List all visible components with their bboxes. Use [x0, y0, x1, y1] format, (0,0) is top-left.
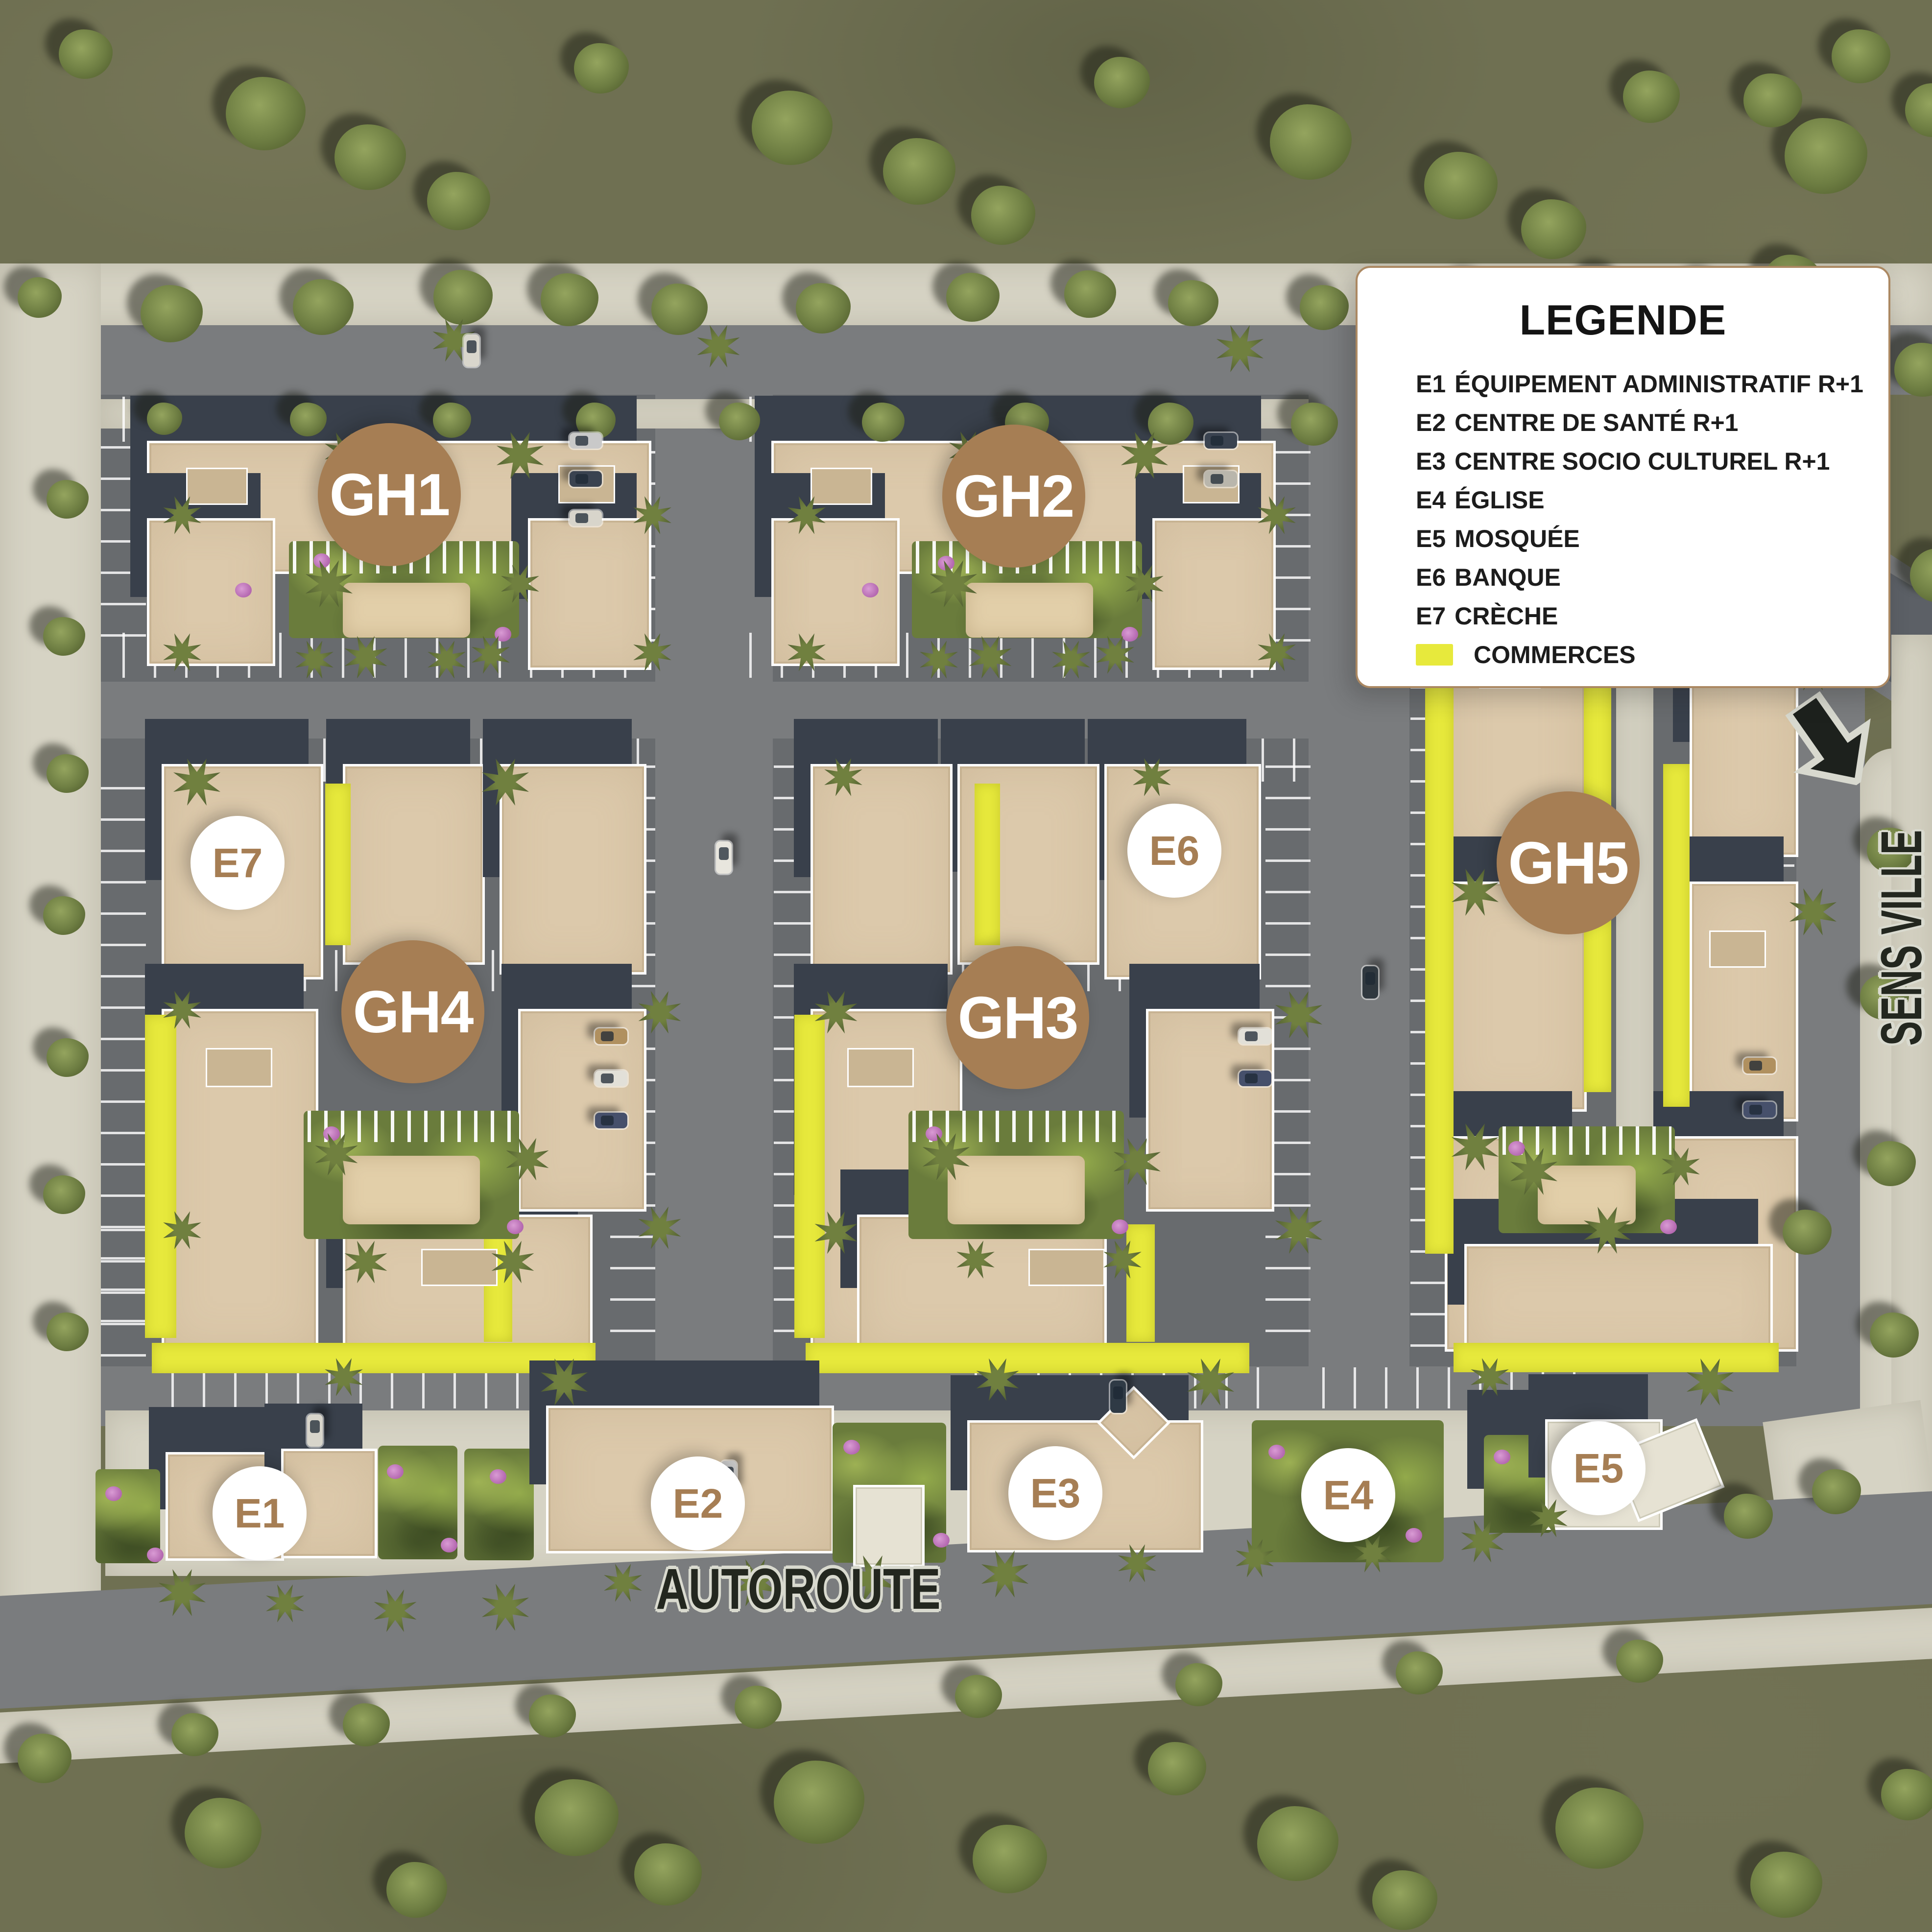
legend-item-code: E6 [1416, 563, 1446, 592]
tree [185, 1798, 262, 1868]
tree [427, 172, 490, 230]
building [500, 764, 646, 975]
building [1152, 518, 1276, 670]
tree [1743, 73, 1802, 127]
building [1464, 1244, 1773, 1360]
car-roof [575, 436, 588, 446]
legend-item-e4: E4ÉGLISE [1416, 480, 1859, 519]
tree [386, 1862, 447, 1918]
legend-item-e7: E7CRÈCHE [1416, 596, 1859, 635]
marker-e7: E7 [191, 816, 285, 910]
commerce-strip [1663, 764, 1690, 1107]
marker-gh3: GH3 [946, 946, 1089, 1089]
tree [1424, 152, 1498, 219]
commerces-swatch-icon [1416, 644, 1453, 666]
building [771, 518, 900, 666]
flower-bed [235, 583, 252, 597]
courtyard-patio [1538, 1166, 1636, 1224]
parked-car [570, 471, 602, 487]
tree [774, 1761, 864, 1844]
pergola [1503, 1126, 1671, 1155]
flower-bed [1121, 627, 1138, 642]
tree [18, 1734, 72, 1783]
pergola [912, 1111, 1121, 1142]
marker-e6: E6 [1127, 804, 1221, 898]
glass-structure [853, 1485, 925, 1567]
tree [752, 91, 833, 165]
car-roof [1245, 1073, 1258, 1083]
flower-bed [490, 1469, 506, 1484]
map-shape [421, 1249, 498, 1286]
car-roof [1245, 1031, 1258, 1041]
legend-item-code: E4 [1416, 486, 1446, 514]
legend-item-code: E2 [1416, 408, 1446, 437]
legend-title: LEGENDE [1416, 296, 1830, 345]
tree [1270, 104, 1352, 180]
flower-bed [933, 1533, 950, 1548]
car-roof [601, 1031, 614, 1041]
map-shape [1028, 1249, 1105, 1286]
tree [59, 29, 113, 79]
car-roof [310, 1420, 320, 1433]
parked-car [1205, 471, 1237, 487]
marker-gh1: GH1 [318, 423, 461, 566]
tree [1094, 57, 1150, 108]
map-shape [206, 1048, 272, 1087]
commerce-strip [794, 1015, 825, 1338]
flower-bed [1406, 1528, 1422, 1543]
parked-car [307, 1414, 323, 1447]
parked-car [1362, 966, 1378, 999]
legend-item-code: E1 [1416, 370, 1446, 398]
parked-car [1205, 433, 1237, 449]
courtyard-patio [343, 583, 470, 638]
tree [883, 138, 955, 205]
marker-gh2: GH2 [942, 425, 1085, 568]
tree [634, 1843, 702, 1906]
car-roof [575, 474, 588, 484]
flower-bed [1112, 1219, 1128, 1234]
commerce-strip [975, 784, 1000, 945]
tree [535, 1779, 619, 1856]
legend-item-e2: E2CENTRE DE SANTÉ R+1 [1416, 403, 1859, 442]
parked-car [464, 334, 479, 367]
commerce-strip [325, 784, 351, 945]
flower-bed [441, 1538, 457, 1552]
commerce-strip [145, 1015, 176, 1338]
tree [334, 124, 406, 190]
flower-bed [147, 1548, 164, 1562]
map-shape [186, 468, 248, 505]
flower-bed [387, 1464, 404, 1479]
autoroute-road-label: AUTOROUTE [656, 1556, 940, 1622]
car-roof [1211, 474, 1223, 484]
legend-item-label: MOSQUÉE [1455, 525, 1580, 553]
commerce-strip [1425, 637, 1454, 1254]
parked-car [1743, 1102, 1776, 1118]
marker-e2: E2 [651, 1456, 745, 1550]
commerce-strip [1454, 1343, 1779, 1372]
marker-e4: E4 [1301, 1448, 1395, 1542]
flower-bed [507, 1219, 524, 1234]
legend-item-label: BANQUE [1455, 563, 1561, 592]
left-walk [0, 263, 101, 1635]
legend-item-label: ÉGLISE [1455, 486, 1544, 514]
building [1690, 882, 1798, 1121]
tree [1257, 1806, 1338, 1881]
parked-car [570, 433, 602, 449]
parked-car [716, 841, 732, 874]
car-roof [1365, 972, 1375, 985]
car-roof [601, 1116, 614, 1125]
flower-bed [1494, 1450, 1510, 1464]
courtyard-patio [966, 583, 1093, 638]
flower-bed [105, 1486, 122, 1501]
tree [1905, 83, 1932, 137]
legend-item-label: COMMERCES [1474, 641, 1636, 669]
parked-car [1743, 1058, 1776, 1073]
flower-bed [1268, 1445, 1285, 1459]
building [811, 764, 953, 975]
tree [1555, 1788, 1644, 1869]
site-plan-map: AUTOROUTE SENS VILLE GH1GH2GH3GH4GH5E1E2… [0, 0, 1932, 1932]
marker-gh4: GH4 [341, 940, 484, 1083]
map-shape [1709, 930, 1766, 968]
marker-e1: E1 [213, 1466, 307, 1560]
car-roof [719, 847, 729, 860]
marker-e3: E3 [1008, 1446, 1102, 1540]
legend-item-e6: E6BANQUE [1416, 558, 1859, 596]
tree [1623, 71, 1680, 123]
tree [574, 43, 629, 94]
flower-bed [1508, 1141, 1525, 1156]
tree [1372, 1870, 1437, 1930]
tree [973, 1825, 1047, 1893]
tree [1175, 1663, 1222, 1706]
tree [1521, 199, 1586, 259]
legend-item-e1: E1ÉQUIPEMENT ADMINISTRATIF R+1 [1416, 364, 1859, 403]
tree [1148, 1742, 1206, 1795]
tree [735, 1686, 782, 1729]
legend-item-code: E3 [1416, 447, 1446, 476]
tree [971, 186, 1035, 245]
commerce-strip [806, 1343, 1249, 1373]
parked-car [1110, 1381, 1126, 1413]
map-shape [811, 468, 872, 505]
car-roof [1749, 1061, 1762, 1071]
marker-e5: E5 [1551, 1421, 1646, 1515]
parked-car [1239, 1028, 1271, 1044]
legend-item-label: ÉQUIPEMENT ADMINISTRATIF R+1 [1455, 370, 1863, 398]
parked-car [595, 1028, 627, 1044]
flower-bed [862, 583, 879, 597]
commerce-strip [1126, 1224, 1155, 1342]
parked-car [595, 1113, 627, 1128]
parked-car [595, 1071, 627, 1086]
car-roof [575, 513, 588, 523]
car-roof [467, 340, 477, 353]
sens-ville-road-label: SENS VILLE [1868, 830, 1932, 1046]
courtyard-patio [343, 1156, 480, 1224]
parked-car [570, 510, 602, 526]
building [528, 518, 651, 670]
tree [1616, 1640, 1663, 1683]
tree [1396, 1651, 1443, 1694]
parked-car [1239, 1071, 1271, 1086]
tree [1785, 118, 1867, 194]
legend-items: E1ÉQUIPEMENT ADMINISTRATIF R+1E2CENTRE D… [1416, 364, 1859, 674]
map-shape [847, 1048, 914, 1087]
legend-item-e3: E3CENTRE SOCIO CULTUREL R+1 [1416, 442, 1859, 480]
flower-bed [843, 1440, 860, 1455]
legend-item-e5: E5MOSQUÉE [1416, 519, 1859, 558]
tree [955, 1675, 1002, 1718]
tree [226, 77, 306, 150]
legend-item-label: CENTRE SOCIO CULTUREL R+1 [1455, 447, 1830, 476]
legend-item-code: E5 [1416, 525, 1446, 553]
flower-bed [1660, 1219, 1677, 1234]
car-roof [601, 1073, 614, 1083]
legend-panel: LEGENDE E1ÉQUIPEMENT ADMINISTRATIF R+1E2… [1356, 266, 1890, 688]
marker-gh5: GH5 [1497, 791, 1640, 934]
equipment-garden [464, 1449, 534, 1560]
building [343, 764, 485, 965]
legend-item-label: CENTRE DE SANTÉ R+1 [1455, 408, 1738, 437]
car-roof [1211, 436, 1223, 446]
car-roof [1749, 1105, 1762, 1115]
car-roof [1113, 1386, 1123, 1399]
tree [1750, 1852, 1822, 1918]
legend-item-code: E7 [1416, 602, 1446, 630]
tree [1832, 29, 1890, 83]
tree [1881, 1769, 1932, 1820]
legend-item-commerces: COMMERCES [1416, 635, 1859, 674]
legend-item-label: CRÈCHE [1455, 602, 1558, 630]
parking-stripes [101, 1200, 146, 1357]
building [147, 518, 275, 666]
